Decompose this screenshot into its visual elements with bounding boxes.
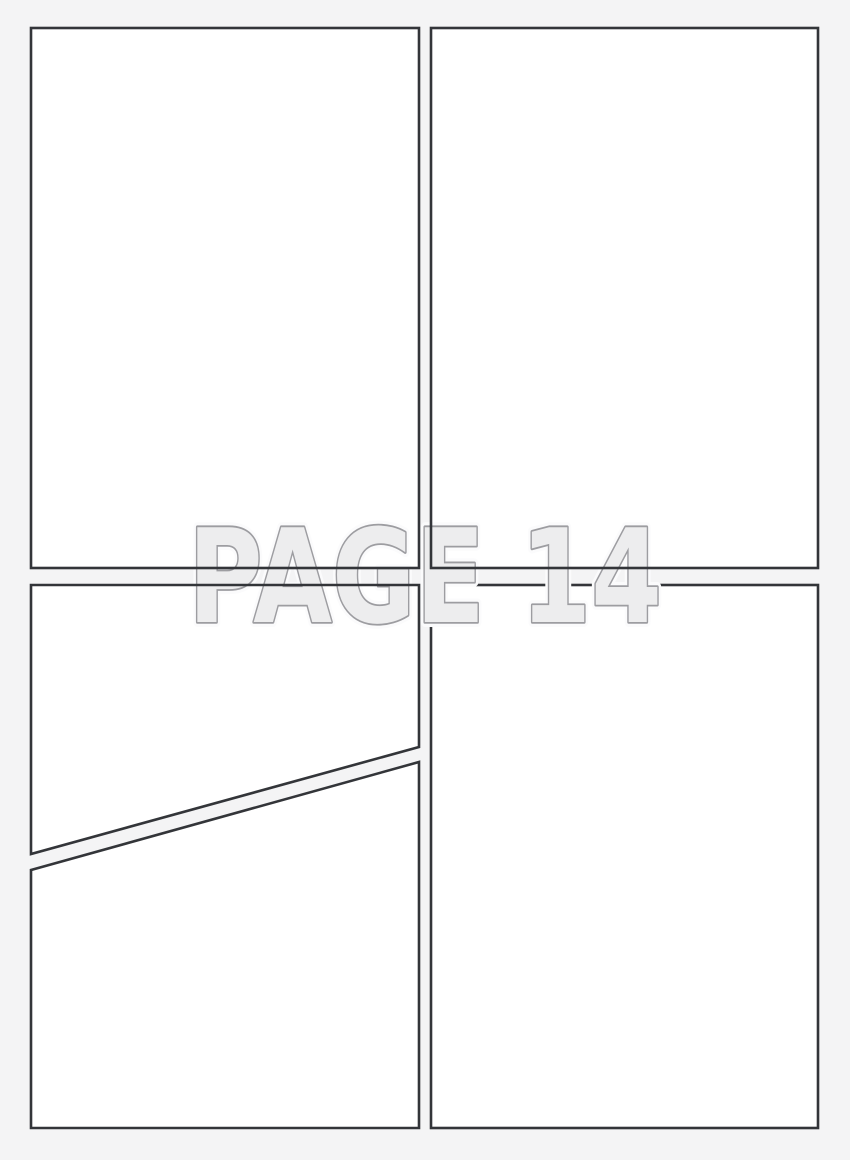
panel-top-right-fill xyxy=(431,28,818,568)
comic-page-template: PAGE 14 PAGE 14 xyxy=(0,0,850,1160)
page-number-label: PAGE 14 xyxy=(188,501,662,653)
panel-top-left-fill xyxy=(31,28,419,568)
panel-bottom-right xyxy=(431,585,818,1128)
